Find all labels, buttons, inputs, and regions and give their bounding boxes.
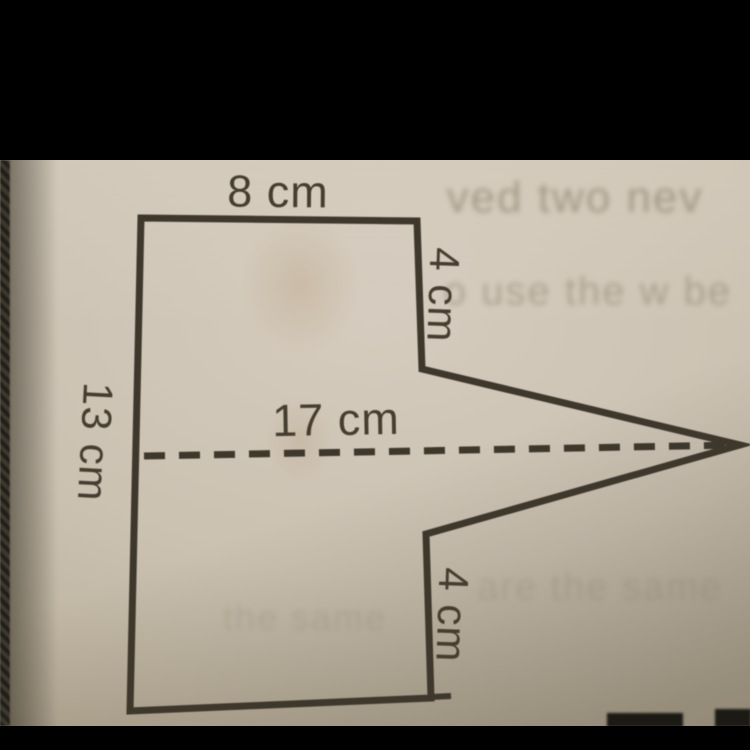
top-width-label: 8 cm <box>227 166 329 219</box>
cropped-figure-fragment <box>607 713 683 726</box>
bottom-edge-overshoot <box>431 696 451 697</box>
worksheet-photo: ved two nev o use the w be are the same … <box>0 160 750 726</box>
dashed-length-line <box>144 445 738 456</box>
left-height-label: 13 cm <box>68 381 122 503</box>
right-lower-side-label: 4 cm <box>426 567 477 664</box>
letterbox-bottom <box>0 726 750 750</box>
photo-frame: ved two nev o use the w be are the same … <box>0 0 750 750</box>
cropped-figure-fragment <box>715 709 750 726</box>
middle-length-label: 17 cm <box>272 393 400 447</box>
letterbox-top <box>0 0 750 160</box>
figure-layer: 8 cm 4 cm 13 cm 17 cm 4 cm <box>0 160 750 726</box>
right-upper-side-label: 4 cm <box>417 247 468 344</box>
